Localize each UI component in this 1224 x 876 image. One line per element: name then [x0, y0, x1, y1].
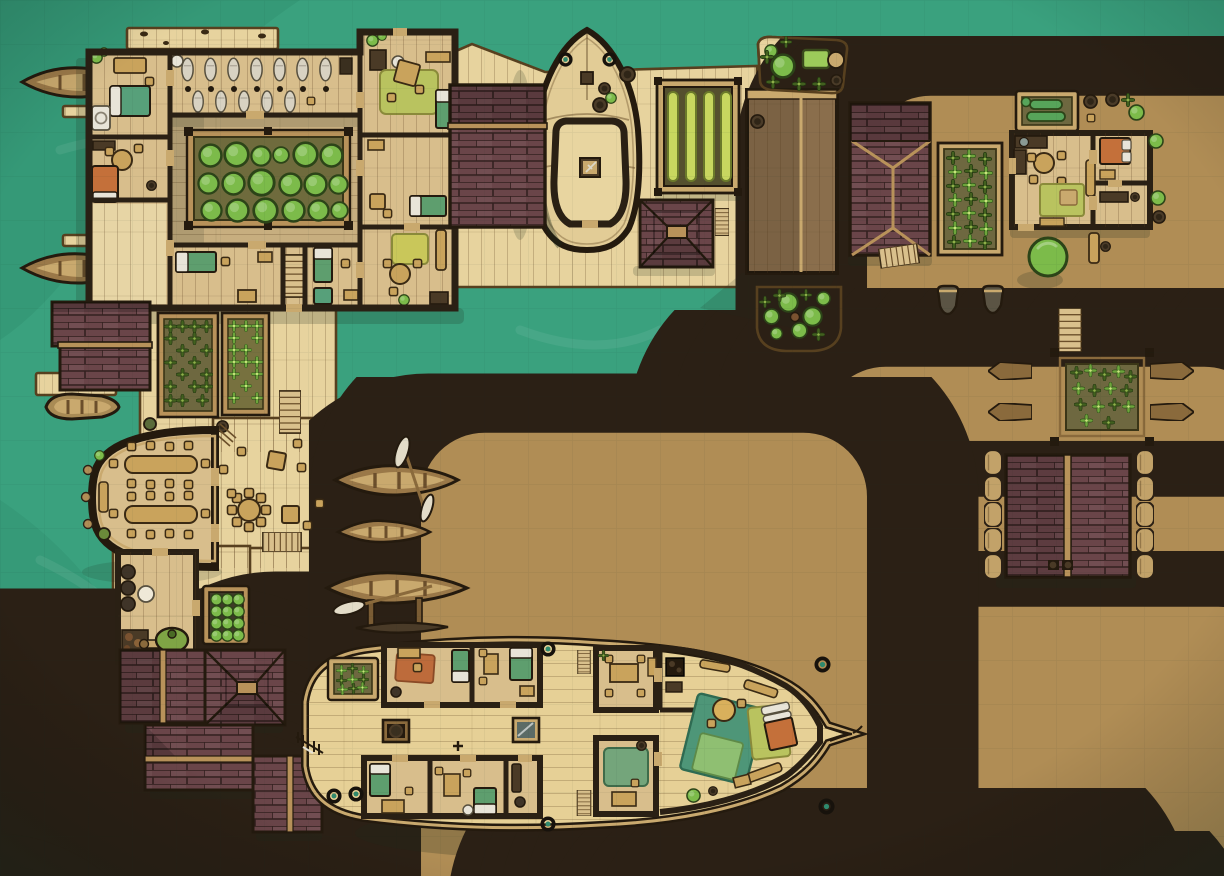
battle-map: [0, 0, 1224, 876]
battle-map-stage: [0, 0, 1224, 876]
vignette: [0, 0, 1224, 876]
